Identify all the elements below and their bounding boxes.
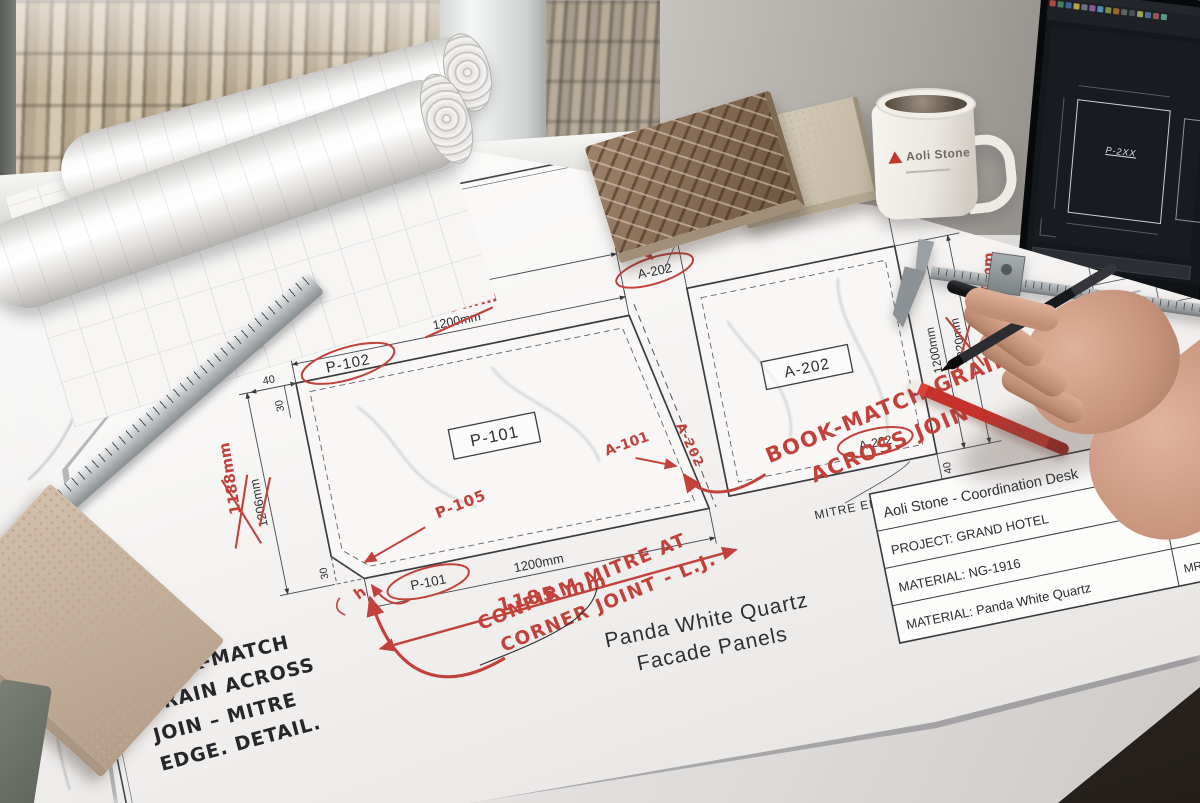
photo-desk-scene: P-2XX DELL	[0, 0, 1200, 803]
dim-40-right: 40	[941, 461, 955, 475]
caliper-lower-jaw	[890, 266, 926, 330]
red-dim-1188-left: 1188mm	[215, 441, 245, 516]
dim-1200-bottom: 1200mm	[512, 551, 565, 576]
cad-panel-outline	[1068, 99, 1171, 224]
cad-ucs-icon	[1039, 218, 1057, 237]
dim-40-left: 40	[262, 373, 276, 387]
mug-rim	[876, 88, 976, 120]
aoli-triangle-icon	[888, 151, 903, 164]
red-h-mark: h	[350, 582, 369, 603]
cad-canvas: P-2XX	[1033, 25, 1200, 259]
caliper-thumbscrew	[1001, 264, 1012, 275]
label-a202-top: A-202	[636, 260, 673, 282]
dim-30-bottom: 30	[317, 566, 331, 580]
dim-1206-left: 1206mm	[247, 478, 270, 528]
cad-panel-outline-2	[1175, 118, 1200, 223]
coffee-mug: Aoli Stone	[862, 86, 1012, 232]
label-p101-bottom: P-101	[409, 571, 447, 593]
dim-30-top: 30	[273, 399, 287, 413]
